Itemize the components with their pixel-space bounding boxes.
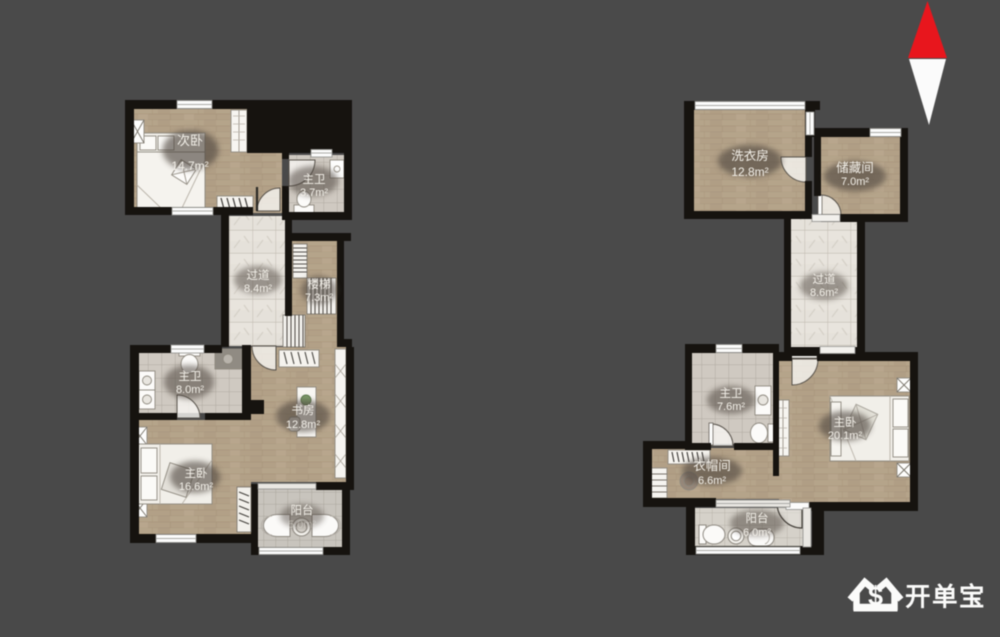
svg-text:过道: 过道 bbox=[247, 268, 270, 282]
svg-text:主卧: 主卧 bbox=[834, 416, 857, 429]
svg-text:5.0m²: 5.0m² bbox=[288, 519, 316, 531]
svg-text:次卧: 次卧 bbox=[177, 133, 203, 148]
svg-text:洗衣房: 洗衣房 bbox=[731, 148, 769, 163]
svg-text:12.8m²: 12.8m² bbox=[731, 165, 768, 179]
svg-text:3.7m²: 3.7m² bbox=[300, 187, 328, 199]
svg-text:开单宝: 开单宝 bbox=[905, 583, 986, 612]
svg-text:$: $ bbox=[868, 581, 883, 611]
svg-text:主卧: 主卧 bbox=[185, 467, 208, 480]
svg-text:16.6m²: 16.6m² bbox=[179, 481, 214, 493]
svg-text:主卫: 主卫 bbox=[179, 370, 202, 383]
svg-text:主卫: 主卫 bbox=[720, 387, 743, 400]
svg-text:7.0m²: 7.0m² bbox=[841, 176, 869, 188]
svg-text:书房: 书房 bbox=[292, 404, 315, 417]
svg-text:7.3m²: 7.3m² bbox=[305, 292, 333, 304]
svg-text:主卫: 主卫 bbox=[303, 173, 326, 186]
svg-text:楼梯: 楼梯 bbox=[308, 277, 331, 291]
svg-text:7.6m²: 7.6m² bbox=[717, 401, 745, 413]
svg-text:6.0m²: 6.0m² bbox=[743, 527, 771, 539]
svg-text:8.4m²: 8.4m² bbox=[244, 283, 272, 295]
svg-text:14.7m²: 14.7m² bbox=[171, 159, 208, 173]
svg-text:阳台: 阳台 bbox=[746, 511, 769, 525]
svg-text:6.6m²: 6.6m² bbox=[698, 475, 726, 487]
svg-text:12.8m²: 12.8m² bbox=[286, 419, 321, 431]
svg-text:衣帽间: 衣帽间 bbox=[693, 458, 731, 473]
svg-text:20.1m²: 20.1m² bbox=[828, 430, 863, 442]
svg-text:8.0m²: 8.0m² bbox=[176, 384, 204, 396]
svg-text:8.6m²: 8.6m² bbox=[810, 287, 838, 299]
svg-text:阳台: 阳台 bbox=[291, 503, 314, 517]
svg-text:储藏间: 储藏间 bbox=[836, 160, 874, 175]
svg-text:过道: 过道 bbox=[813, 272, 836, 286]
